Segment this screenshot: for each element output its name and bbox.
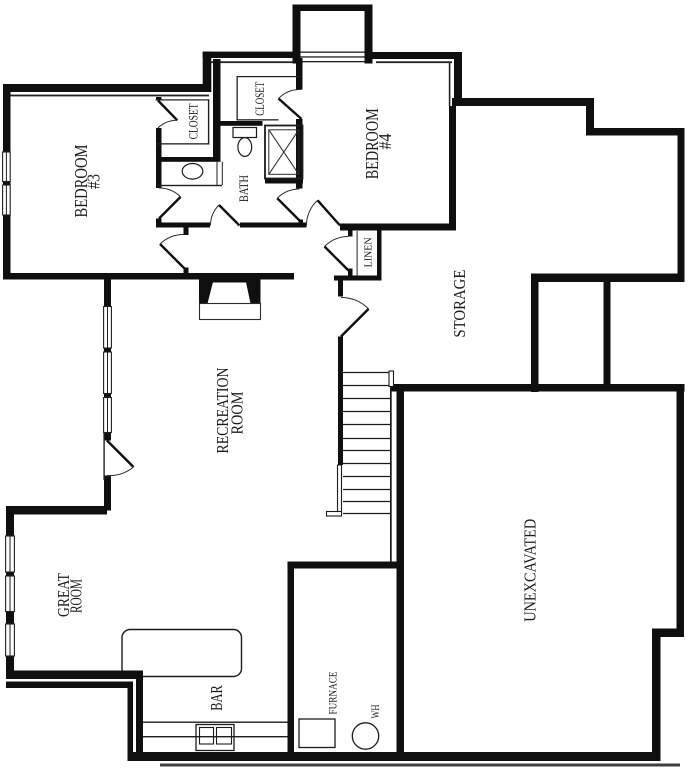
svg-text:ROOM: ROOM [67, 579, 86, 613]
svg-text:#4: #4 [375, 134, 395, 150]
svg-text:WH: WH [368, 704, 382, 718]
svg-text:LINEN: LINEN [362, 237, 374, 267]
svg-text:BAR: BAR [207, 685, 226, 711]
svg-text:ROOM: ROOM [228, 392, 247, 435]
svg-text:CLOSET: CLOSET [252, 82, 267, 116]
svg-text:UNEXCAVATED: UNEXCAVATED [520, 519, 539, 622]
svg-text:FURNACE: FURNACE [326, 672, 340, 715]
svg-text:#3: #3 [83, 174, 103, 189]
svg-text:STORAGE: STORAGE [450, 270, 469, 338]
svg-text:BATH: BATH [236, 175, 251, 202]
svg-text:CLOSET: CLOSET [186, 103, 201, 139]
